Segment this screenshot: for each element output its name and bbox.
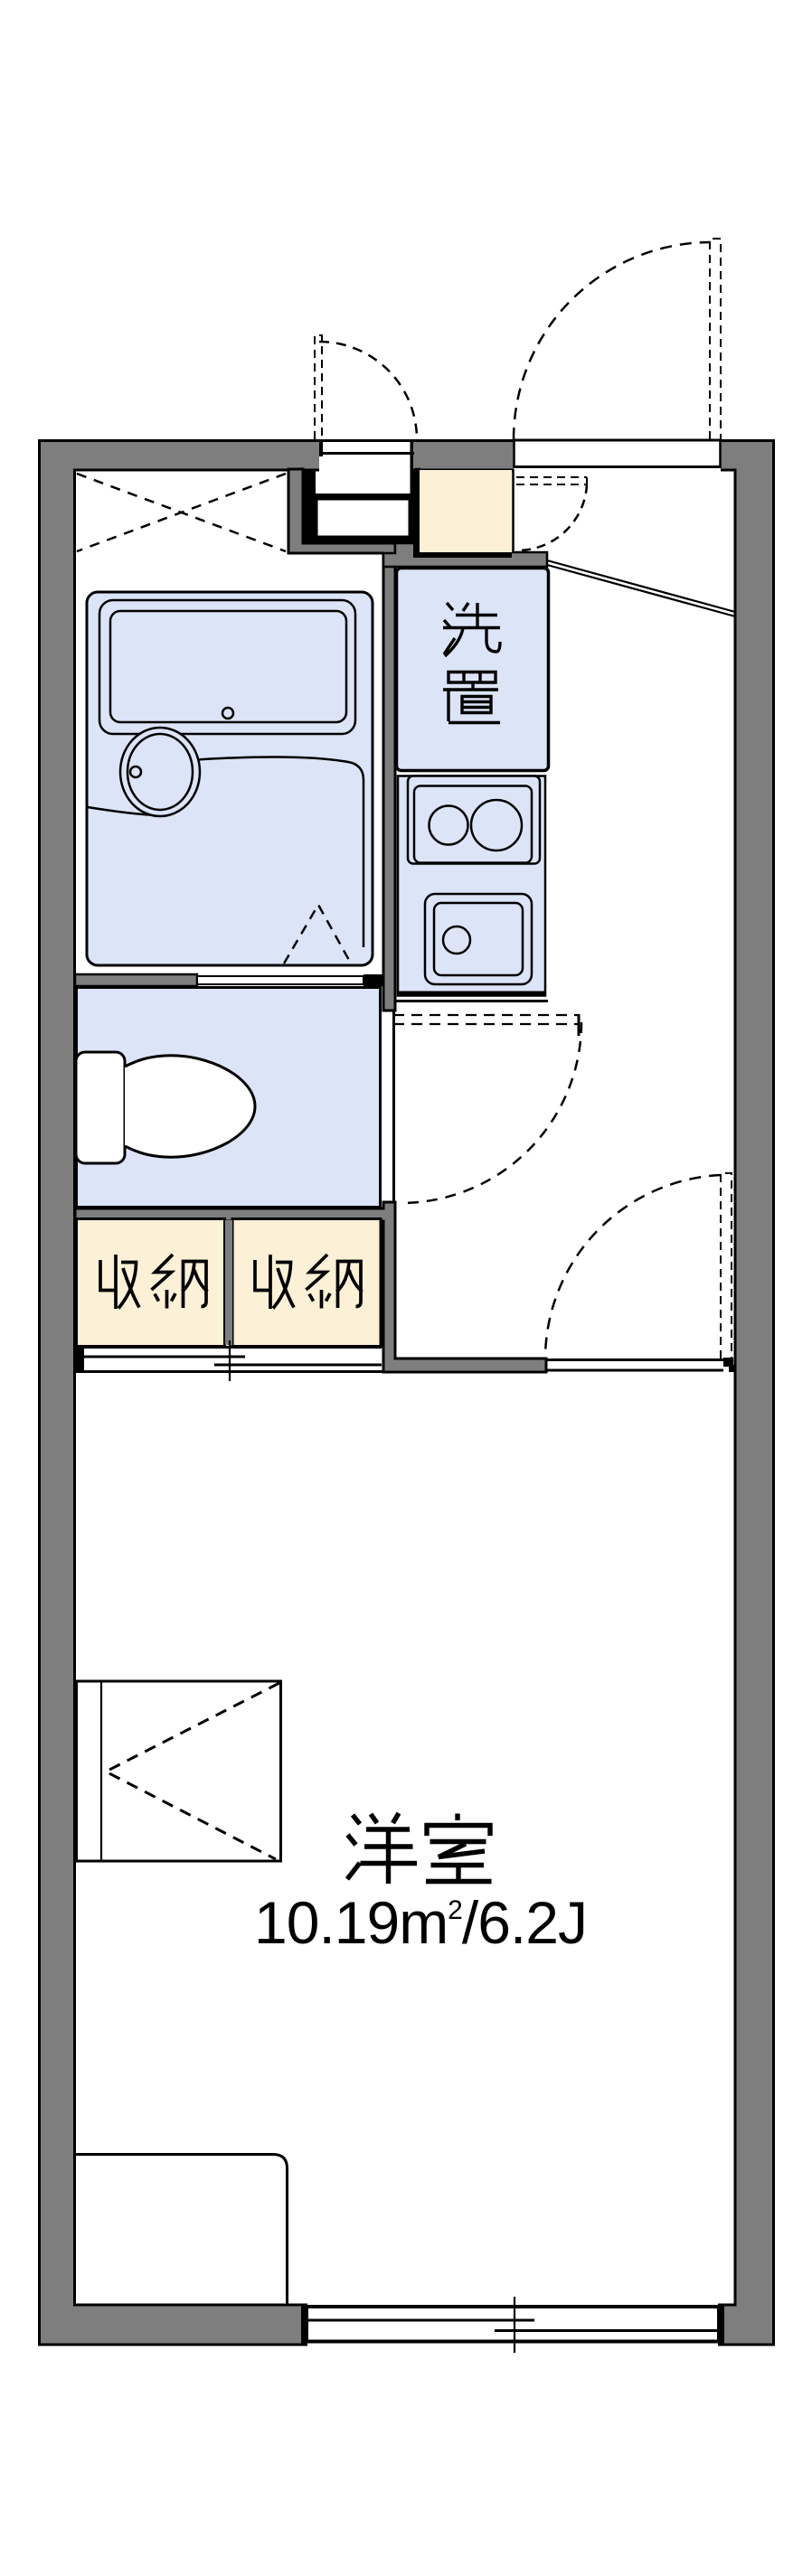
svg-text:10.19m2/6.2J: 10.19m2/6.2J	[254, 1889, 587, 1956]
